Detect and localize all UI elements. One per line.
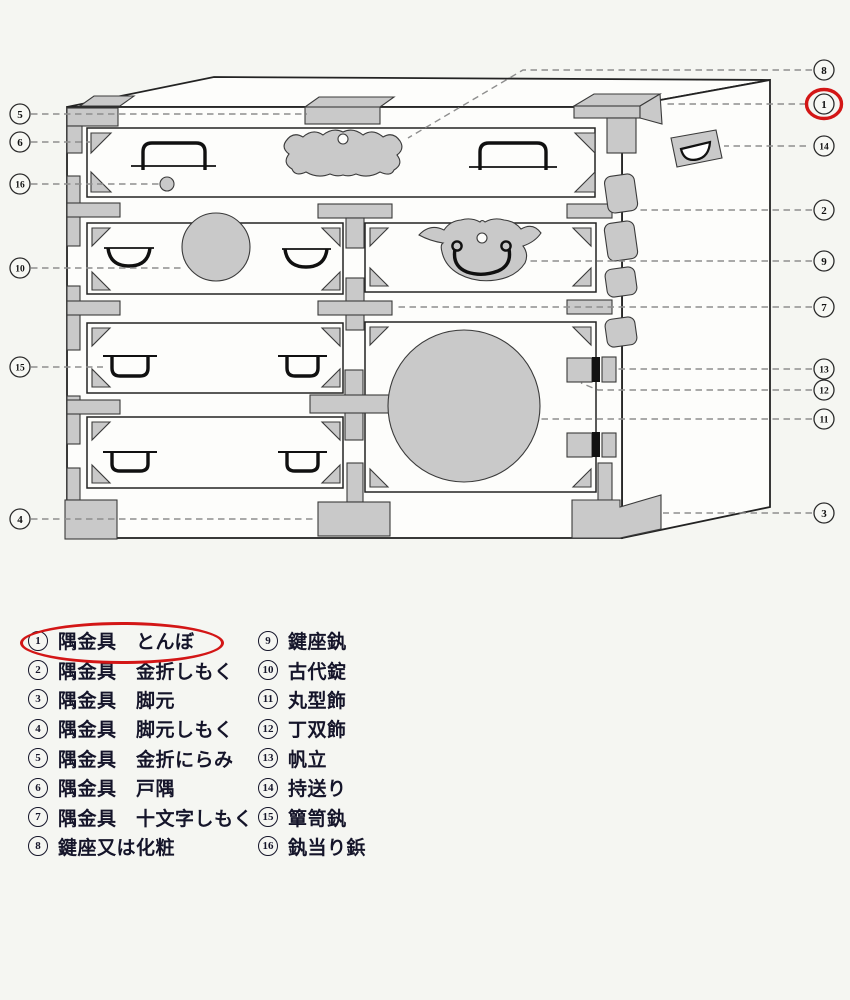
- svg-text:3: 3: [821, 508, 827, 520]
- legend-label-1: 隅金具 とんぼ: [58, 627, 195, 654]
- legend-num-6: 6: [28, 778, 48, 798]
- legend-item-12: 12丁双飾: [258, 714, 366, 743]
- legend-num-8: 8: [28, 836, 48, 856]
- legend-num-7: 7: [28, 807, 48, 827]
- callout-13: 13: [814, 359, 834, 379]
- legend-label-4: 隅金具 脚元しもく: [58, 715, 234, 742]
- callout-4: 4: [10, 509, 30, 529]
- callout-2: 2: [814, 200, 834, 220]
- svg-text:13: 13: [819, 366, 829, 376]
- legend-item-15: 15簞笥釻: [258, 802, 366, 831]
- legend-num-16: 16: [258, 836, 278, 856]
- svg-text:16: 16: [15, 181, 25, 191]
- page: 5 6 16 10 15 4 8 1 14 2 9 7 13 12 11 3 1…: [0, 0, 850, 1000]
- legend-num-14: 14: [258, 778, 278, 798]
- legend-item-14: 14持送り: [258, 773, 366, 802]
- callout-11: 11: [814, 409, 834, 429]
- legend-item-7: 7隅金具 十文字しもく: [28, 802, 253, 831]
- callout-8: 8: [814, 60, 834, 80]
- legend-label-7: 隅金具 十文字しもく: [58, 804, 253, 831]
- legend-item-8: 8鍵座又は化粧: [28, 832, 253, 861]
- callout-5: 5: [10, 104, 30, 124]
- legend-item-4: 4隅金具 脚元しもく: [28, 714, 253, 743]
- callout-3: 3: [814, 503, 834, 523]
- svg-text:2: 2: [821, 205, 827, 217]
- svg-text:1: 1: [821, 99, 827, 111]
- svg-text:8: 8: [821, 65, 827, 77]
- svg-text:11: 11: [820, 416, 829, 426]
- stud-kan-atari-byo: [160, 177, 174, 191]
- svg-text:4: 4: [17, 514, 23, 526]
- callout-9: 9: [814, 251, 834, 271]
- tansu-fittings-diagram: 5 6 16 10 15 4 8 1 14 2 9 7 13 12 11 3: [0, 0, 850, 590]
- legend-label-16: 釻当り鋲: [288, 833, 366, 860]
- svg-text:15: 15: [15, 364, 25, 374]
- callout-12: 12: [814, 380, 834, 400]
- callout-6: 6: [10, 132, 30, 152]
- svg-text:6: 6: [17, 137, 23, 149]
- svg-text:12: 12: [819, 387, 829, 397]
- foot-fitting-center: [318, 502, 390, 536]
- legend-label-12: 丁双飾: [288, 715, 347, 742]
- callout-14: 14: [814, 136, 834, 156]
- legend-num-15: 15: [258, 807, 278, 827]
- ornament-round-marugata: [388, 330, 540, 482]
- legend-label-3: 隅金具 脚元: [58, 686, 175, 713]
- legend-num-9: 9: [258, 631, 278, 651]
- legend-label-11: 丸型飾: [288, 686, 347, 713]
- legend-num-10: 10: [258, 660, 278, 680]
- svg-text:5: 5: [17, 109, 23, 121]
- legend-num-5: 5: [28, 748, 48, 768]
- svg-text:7: 7: [821, 302, 827, 314]
- foot-fitting-right: [572, 495, 661, 538]
- legend-label-8: 鍵座又は化粧: [58, 833, 175, 860]
- callout-16: 16: [10, 174, 30, 194]
- legend-item-16: 16釻当り鋲: [258, 832, 366, 861]
- legend-label-10: 古代錠: [288, 657, 347, 684]
- legend-label-14: 持送り: [288, 774, 347, 801]
- legend-label-2: 隅金具 金折しもく: [58, 657, 234, 684]
- legend-item-11: 11丸型飾: [258, 685, 366, 714]
- legend-item-13: 13帆立: [258, 744, 366, 773]
- legend-label-6: 隅金具 戸隅: [58, 774, 175, 801]
- hinge-upper: [567, 357, 616, 382]
- legend-label-13: 帆立: [288, 745, 327, 772]
- legend-column-1: 1隅金具 とんぼ 2隅金具 金折しもく 3隅金具 脚元 4隅金具 脚元しもく 5…: [28, 626, 253, 861]
- callout-10: 10: [10, 258, 30, 278]
- legend-item-3: 3隅金具 脚元: [28, 685, 253, 714]
- legend-item-9: 9鍵座釻: [258, 626, 366, 655]
- legend-label-15: 簞笥釻: [288, 804, 347, 831]
- legend-label-5: 隅金具 金折にらみ: [58, 745, 234, 772]
- legend-item-1: 1隅金具 とんぼ: [28, 626, 253, 655]
- lockplate-kesho: [284, 130, 402, 176]
- legend-label-9: 鍵座釻: [288, 627, 347, 654]
- legend-num-3: 3: [28, 689, 48, 709]
- callout-1: 1: [814, 94, 834, 114]
- svg-text:10: 10: [15, 265, 25, 275]
- legend-num-11: 11: [258, 689, 278, 709]
- lock-kodai: [182, 213, 250, 281]
- legend-item-6: 6隅金具 戸隅: [28, 773, 253, 802]
- legend-num-12: 12: [258, 719, 278, 739]
- svg-text:9: 9: [821, 256, 827, 268]
- legend-column-2: 9鍵座釻 10古代錠 11丸型飾 12丁双飾 13帆立 14持送り 15簞笥釻 …: [258, 626, 366, 861]
- svg-text:14: 14: [819, 143, 829, 153]
- hinge-lower: [567, 432, 616, 457]
- legend-num-13: 13: [258, 748, 278, 768]
- callout-15: 15: [10, 357, 30, 377]
- legend-num-2: 2: [28, 660, 48, 680]
- legend-item-10: 10古代錠: [258, 655, 366, 684]
- legend-num-4: 4: [28, 719, 48, 739]
- legend-num-1: 1: [28, 631, 48, 651]
- callout-7: 7: [814, 297, 834, 317]
- legend-item-2: 2隅金具 金折しもく: [28, 655, 253, 684]
- legend-item-5: 5隅金具 金折にらみ: [28, 744, 253, 773]
